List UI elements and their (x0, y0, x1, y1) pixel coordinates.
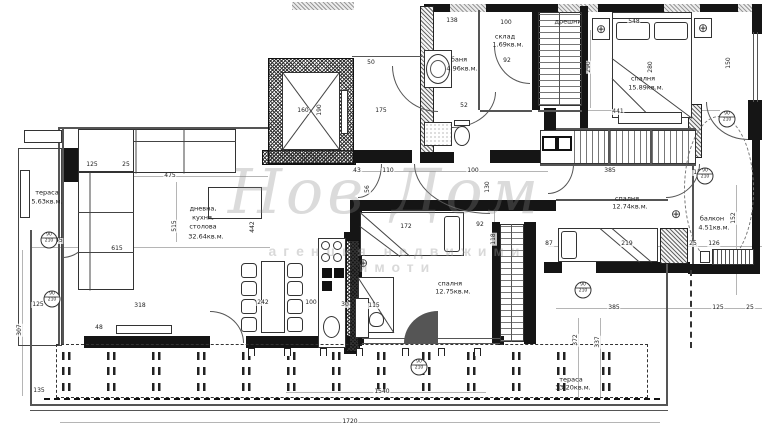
bed-pillow (561, 231, 577, 259)
dimension-label: 30 (340, 302, 350, 308)
terrace-bench (24, 130, 62, 143)
wardrobe-column (500, 224, 524, 342)
area-label: 1.69кв.м. (492, 42, 523, 49)
door-arc (548, 164, 574, 194)
railing-post (284, 348, 291, 356)
stove-burner (321, 253, 330, 262)
dimension-label: 43 (352, 168, 362, 174)
dimension-label: 385 (607, 305, 620, 311)
dimension-label: 50 (366, 60, 376, 66)
railing-post (356, 348, 363, 356)
terrace-heavy-dashed-line (44, 398, 660, 400)
floor-plan-canvas: ⊕ ⊕ ⊕ ⊕ (0, 0, 768, 431)
size-marker: 90210 (575, 282, 592, 299)
dining-chair (287, 281, 303, 296)
railing-post (320, 348, 327, 356)
wall-segment (544, 262, 562, 273)
wall-segment (420, 152, 454, 163)
door-arc (494, 46, 530, 84)
sofa-cushion-line (136, 130, 137, 174)
dimension-label: 152 (731, 211, 737, 224)
dimension-label: 100 (304, 300, 317, 306)
window-line (753, 32, 754, 102)
dimension-label: 92 (502, 58, 512, 64)
dimension-label: 138 (445, 18, 458, 24)
dimension-label: 280 (648, 60, 654, 73)
dimension-label: 25 (688, 241, 698, 247)
room-label: дневна, (190, 206, 217, 213)
railing-post (402, 348, 409, 356)
room-label: дрешник (555, 19, 586, 26)
dimension-line (60, 422, 660, 423)
wall-hatch-patch (558, 4, 598, 12)
dimension-label: 290 (586, 60, 592, 73)
wardrobe-hangers (574, 131, 694, 163)
terrace-planter (20, 170, 30, 218)
door-arc (404, 311, 438, 343)
dimension-label: 318 (133, 303, 146, 309)
radiator (712, 249, 754, 265)
dimension-line (556, 308, 762, 309)
dimension-label: 125 (31, 302, 44, 308)
window-line (757, 32, 758, 102)
oven-box (322, 281, 332, 291)
dimension-label: 110 (381, 168, 394, 174)
dimension-label: 25 (121, 162, 131, 168)
door-arc (210, 311, 244, 343)
dimension-label: 130 (485, 180, 491, 193)
stove-burner (321, 241, 330, 250)
wall-segment (748, 100, 762, 140)
dimension-label: 615 (110, 246, 123, 252)
dimension-label: 242 (256, 300, 269, 306)
area-label: 12.75кв.м. (435, 289, 470, 296)
wall-segment (354, 150, 412, 163)
dimension-label: 87 (544, 241, 554, 247)
dimension-label: 190 (317, 103, 323, 116)
dimension-label: 52 (459, 103, 469, 109)
area-label: 32.64кв.м. (188, 234, 223, 241)
size-marker: 90210 (41, 232, 58, 249)
size-marker: 90210 (719, 111, 736, 128)
room-label: столова (189, 224, 216, 231)
radiator-valve (700, 251, 710, 263)
dimension-label: 126 (707, 241, 720, 247)
closet-rail (559, 12, 560, 106)
dimension-label: 337 (595, 335, 601, 348)
wardrobe-divider (608, 130, 610, 164)
wall-segment (524, 222, 536, 344)
size-marker: 90210 (411, 359, 428, 376)
elevator-x-symbol (283, 73, 339, 149)
wall-line (556, 199, 668, 201)
dimension-label: 135 (32, 388, 45, 394)
dimension-label: 442 (250, 220, 256, 233)
wall-segment (688, 264, 760, 274)
railing-post (438, 348, 445, 356)
area-label: 4.96кв.м. (446, 66, 477, 73)
dimension-label: 1720 (341, 419, 358, 425)
room-label: спалня (615, 196, 639, 203)
dimension-label: 515 (172, 219, 178, 232)
dimension-label: 118 (491, 232, 497, 245)
room-label: тераса (559, 377, 582, 384)
outer-boundary (666, 247, 668, 405)
closet-hangers (538, 12, 582, 106)
wall-line (352, 56, 422, 57)
area-label: 4.51кв.м. (698, 225, 729, 232)
sofa-cushion-line (184, 130, 185, 174)
dresser (660, 228, 688, 264)
shower-tray (424, 122, 452, 146)
stove-burner (333, 253, 342, 262)
dimension-label: 548 (627, 19, 640, 25)
closet-rail (511, 224, 512, 342)
vent-symbol: ⊕ (698, 22, 708, 34)
dimension-label: 92 (475, 222, 485, 228)
elevator-cab (282, 72, 340, 150)
railing-post (474, 348, 481, 356)
vent-symbol: ⊕ (358, 257, 368, 269)
terrace-dashed-line (690, 270, 692, 348)
bed-pillow (444, 216, 460, 252)
dimension-label: 160 (296, 108, 309, 114)
dimension-label: 125 (711, 305, 724, 311)
dimension-label: 48 (94, 325, 104, 331)
dining-chair (241, 263, 257, 278)
dining-chair (241, 281, 257, 296)
dimension-label: 475 (163, 173, 176, 179)
size-marker: 90210 (697, 168, 714, 185)
wall-hatch-patch (450, 4, 486, 12)
sofa-section (78, 172, 134, 290)
dimension-label: 441 (611, 109, 624, 115)
room-label: кухня, (192, 215, 214, 222)
area-label: 15.89кв.м. (628, 85, 663, 92)
area-label: 33.20кв.м. (555, 385, 590, 392)
wall-segment (64, 148, 78, 182)
dimension-label: 115 (367, 303, 380, 309)
sofa-cushion-line (78, 212, 134, 213)
desk-chair (369, 312, 384, 327)
room-label: спалня (631, 76, 655, 83)
wall-segment (752, 4, 762, 34)
outer-boundary (30, 410, 668, 411)
dining-chair (287, 317, 303, 332)
dimension-label: 307 (17, 323, 23, 336)
dining-chair (287, 263, 303, 278)
dimension-label: 100 (499, 20, 512, 26)
sofa-back-line (90, 173, 91, 291)
wall-hatch-patch (664, 4, 700, 12)
bed-pillow (654, 22, 688, 40)
area-label: 5.63кв.м. (31, 199, 62, 206)
dining-chair (287, 299, 303, 314)
dining-chair (241, 317, 257, 332)
wardrobe-divider (650, 130, 652, 164)
wall-line (538, 110, 582, 112)
sofa-cushion-line (78, 252, 134, 253)
room-label: баня (451, 57, 467, 64)
outer-boundary (30, 404, 668, 406)
oven-box (322, 268, 332, 278)
dresser (618, 112, 682, 124)
dimension-label: 372 (573, 333, 579, 346)
coffee-table (208, 187, 262, 219)
vent-symbol: ⊕ (596, 23, 606, 35)
area-label: 12.74кв.м. (612, 204, 647, 211)
washbasin-inner (430, 60, 446, 78)
pillar-mark-row (62, 352, 646, 360)
stove-burner (333, 241, 342, 250)
dimension-label: 100 (466, 168, 479, 174)
dimension-line (176, 182, 177, 242)
wardrobe-box (542, 136, 557, 151)
room-label: тераса (35, 190, 58, 197)
dimension-label: 125 (85, 162, 98, 168)
room-label: спалня (438, 281, 462, 288)
wardrobe-box (557, 136, 572, 151)
dining-table (261, 261, 285, 333)
toilet (454, 126, 470, 146)
oven-box (334, 268, 344, 278)
room-label: балкон (700, 216, 724, 223)
dining-chair (241, 299, 257, 314)
dimension-label: 56 (365, 184, 371, 194)
wall-hatch-patch (292, 2, 354, 10)
dimension-label: 219 (620, 241, 633, 247)
kitchen-sink (323, 316, 340, 338)
railing-post (248, 348, 255, 356)
dimension-label: 25 (745, 305, 755, 311)
dimension-label: 175 (374, 108, 387, 114)
outer-boundary (30, 230, 32, 406)
vent-symbol: ⊕ (671, 208, 681, 220)
elevator-door (341, 90, 348, 134)
dimension-label: 150 (726, 56, 732, 69)
dimension-label: 385 (603, 168, 616, 174)
dimension-label: 1540 (373, 389, 390, 395)
terrace-planter (116, 325, 172, 334)
dimension-label: 172 (399, 224, 412, 230)
room-label: склад (495, 34, 515, 41)
pillar-mark-row (62, 367, 646, 375)
size-marker: 90210 (44, 291, 61, 308)
